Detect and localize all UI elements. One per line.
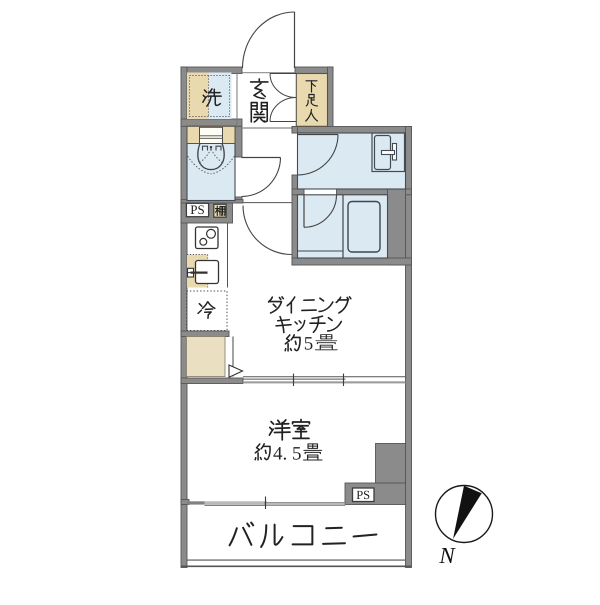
- svg-text:PS: PS: [190, 202, 204, 217]
- svg-text:PS: PS: [356, 488, 370, 502]
- svg-text:N: N: [438, 543, 456, 568]
- svg-text:4. 5: 4. 5: [273, 443, 302, 464]
- svg-text:5: 5: [304, 334, 314, 355]
